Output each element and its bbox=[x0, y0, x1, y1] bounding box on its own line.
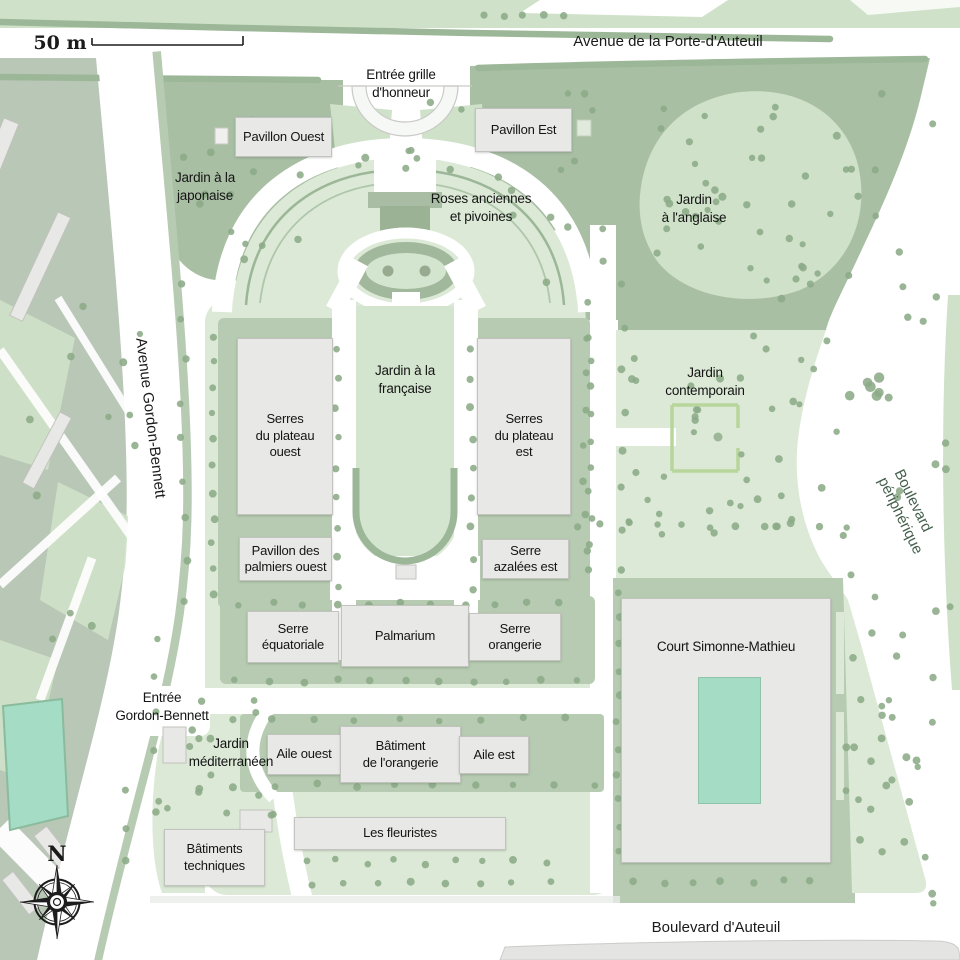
building-serre-azalees-est: Serre azalées est bbox=[482, 539, 569, 579]
building-pavillon-palmiers-ouest: Pavillon des palmiers ouest bbox=[239, 537, 332, 581]
building-label: Bâtiment de l'orangerie bbox=[363, 738, 439, 771]
garden-label-japonaise: Jardin à la japonaise bbox=[175, 169, 235, 205]
entrance-label-gordon-bennett: Entrée Gordon-Bennett bbox=[115, 689, 208, 725]
building-label: Aile est bbox=[473, 747, 514, 764]
building-court-simonne-mathieu: Court Simonne-Mathieu bbox=[621, 598, 831, 863]
building-label: Pavillon des palmiers ouest bbox=[245, 543, 327, 576]
building-label: Serre équatoriale bbox=[262, 621, 324, 654]
tennis-court bbox=[698, 677, 761, 804]
building-aile-ouest: Aile ouest bbox=[267, 734, 341, 775]
building-label: Pavillon Ouest bbox=[243, 129, 324, 146]
building-label: Pavillon Est bbox=[491, 122, 557, 139]
garden-label-francaise: Jardin à la française bbox=[375, 362, 435, 398]
building-label: Serre azalées est bbox=[494, 543, 558, 576]
building-batiments-techniques: Bâtiments techniques bbox=[164, 829, 265, 886]
building-pavillon-ouest: Pavillon Ouest bbox=[235, 117, 332, 157]
building-label: Les fleuristes bbox=[363, 825, 437, 842]
building-label: Court Simonne-Mathieu bbox=[657, 639, 795, 656]
building-label: Serres du plateau est bbox=[495, 411, 554, 461]
garden-label-mediterraneen: Jardin méditerranéen bbox=[189, 735, 273, 771]
building-label: Bâtiments techniques bbox=[184, 841, 245, 874]
map-jardin-serres-auteuil: Pavillon Ouest Pavillon Est Serres du pl… bbox=[0, 0, 960, 960]
building-serre-orangerie: Serre orangerie bbox=[469, 613, 561, 661]
east-walk bbox=[590, 225, 616, 893]
garden-label-anglaise: Jardin à l'anglaise bbox=[662, 191, 727, 227]
building-label: Serres du plateau ouest bbox=[256, 411, 315, 461]
building-pavillon-est: Pavillon Est bbox=[475, 108, 572, 152]
street-label-boulevard-auteuil: Boulevard d'Auteuil bbox=[652, 919, 781, 937]
building-les-fleuristes: Les fleuristes bbox=[294, 817, 506, 850]
street-label-porte-auteuil: Avenue de la Porte-d'Auteuil bbox=[573, 33, 762, 51]
compass-north-label: N bbox=[47, 845, 66, 863]
building-palmarium: Palmarium bbox=[341, 605, 469, 667]
entrance-label-grille-honneur: Entrée grille d'honneur bbox=[366, 66, 435, 102]
building-aile-est: Aile est bbox=[459, 736, 529, 774]
building-label: Palmarium bbox=[375, 628, 435, 645]
building-label: Aile ouest bbox=[276, 746, 331, 763]
jardin-francaise-strip bbox=[356, 306, 454, 561]
garden-label-contemporain: Jardin contemporain bbox=[665, 364, 744, 400]
sports-field-teal bbox=[3, 699, 68, 830]
building-serres-plateau-est: Serres du plateau est bbox=[477, 338, 571, 515]
garden-label-roses: Roses anciennes et pivoines bbox=[431, 190, 532, 226]
scale-bar-label: 50 m bbox=[33, 34, 86, 52]
building-label: Serre orangerie bbox=[488, 621, 541, 654]
building-serres-plateau-ouest: Serres du plateau ouest bbox=[237, 338, 333, 515]
building-batiment-orangerie: Bâtiment de l'orangerie bbox=[340, 726, 461, 783]
building-serre-equatoriale: Serre équatoriale bbox=[247, 611, 339, 663]
